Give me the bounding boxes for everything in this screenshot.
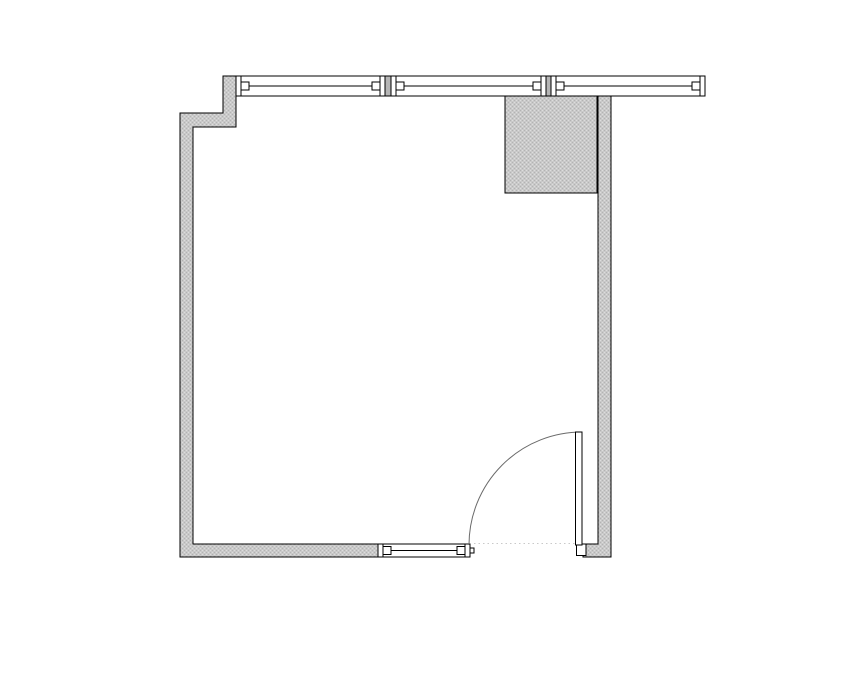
curtain-window-segment-2-stop-left: [396, 82, 404, 90]
floor-plan-drawing: [0, 0, 855, 678]
wall-left-and-bottom: [180, 76, 378, 557]
door-swing-arc: [469, 432, 582, 545]
curtain-window-segment-3-stop-left: [556, 82, 564, 90]
curtain-window-segment-1-stop-left: [241, 82, 249, 90]
curtain-window-segment-2-stop-right: [533, 82, 541, 90]
door-leaf: [576, 432, 583, 545]
plan-geometry-layer: [180, 76, 705, 557]
bottom-window-end-nub: [470, 548, 474, 553]
shaft-column-block: [505, 96, 597, 193]
curtain-window-segment-3-stop-right: [692, 82, 700, 90]
floor-plan-page: [0, 0, 855, 678]
bottom-window-stop-left: [383, 547, 391, 555]
bottom-window-stop-right: [457, 547, 465, 555]
window-mullion-2: [546, 76, 551, 96]
door-jamb-block: [577, 544, 587, 556]
curtain-window-segment-1-stop-right: [372, 82, 380, 90]
window-mullion-1: [385, 76, 391, 96]
